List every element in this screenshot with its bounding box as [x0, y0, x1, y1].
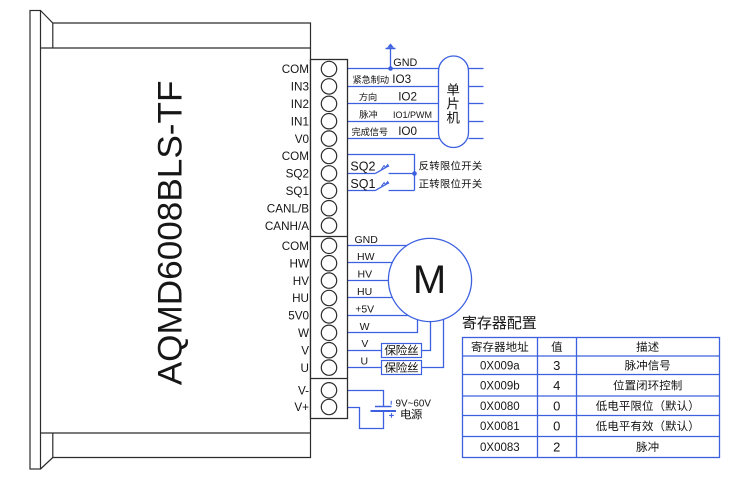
svg-text:V0: V0 — [295, 133, 310, 146]
svg-text:HU: HU — [292, 292, 309, 305]
svg-text:0X0083: 0X0083 — [480, 442, 520, 454]
svg-text:V: V — [301, 344, 309, 357]
svg-text:+5V: +5V — [355, 303, 374, 315]
svg-text:U: U — [301, 362, 309, 375]
svg-text:SQ1: SQ1 — [286, 185, 309, 198]
svg-text:IO2: IO2 — [398, 90, 417, 103]
svg-text:0X009a: 0X009a — [480, 361, 520, 373]
svg-text:V-: V- — [298, 385, 309, 398]
svg-text:HU: HU — [357, 286, 372, 298]
svg-text:HW: HW — [290, 257, 309, 270]
svg-text:0: 0 — [553, 419, 560, 434]
svg-text:HV: HV — [358, 269, 373, 281]
svg-text:IN1: IN1 — [291, 115, 309, 128]
svg-text:0X0081: 0X0081 — [480, 421, 520, 433]
svg-text:IO1/PWM: IO1/PWM — [393, 110, 432, 120]
svg-text:IN2: IN2 — [291, 98, 309, 111]
svg-text:9V~60V: 9V~60V — [396, 398, 432, 409]
svg-text:W: W — [298, 327, 309, 340]
svg-text:HW: HW — [357, 251, 375, 263]
svg-text:GND: GND — [355, 234, 379, 246]
svg-text:U: U — [361, 356, 369, 368]
svg-text:GND: GND — [393, 57, 417, 69]
svg-text:IN3: IN3 — [291, 81, 309, 94]
svg-text:SQ2: SQ2 — [350, 160, 375, 174]
svg-text:2: 2 — [553, 440, 560, 455]
svg-text:CANH/A: CANH/A — [265, 220, 309, 233]
svg-text:W: W — [360, 321, 370, 333]
svg-text:IO0: IO0 — [398, 125, 417, 138]
svg-text:0X0080: 0X0080 — [480, 401, 520, 413]
svg-text:CANL/B: CANL/B — [267, 202, 309, 215]
svg-text:AQMD6008BLS-TF: AQMD6008BLS-TF — [152, 81, 189, 386]
svg-text:IO3: IO3 — [392, 73, 411, 86]
svg-text:0X009b: 0X009b — [480, 381, 520, 393]
svg-text:SQ2: SQ2 — [286, 168, 309, 181]
svg-text:COM: COM — [282, 63, 309, 76]
svg-text:V+: V+ — [294, 401, 309, 414]
svg-text:COM: COM — [282, 150, 309, 163]
svg-text:V: V — [361, 338, 368, 350]
svg-text:M: M — [413, 258, 446, 302]
svg-text:5V0: 5V0 — [288, 310, 309, 323]
svg-text:HV: HV — [293, 275, 309, 288]
svg-text:SQ1: SQ1 — [350, 177, 375, 191]
svg-text:COM: COM — [282, 240, 309, 253]
svg-text:4: 4 — [553, 378, 560, 393]
svg-text:3: 3 — [553, 358, 560, 373]
svg-text:0: 0 — [553, 399, 560, 414]
